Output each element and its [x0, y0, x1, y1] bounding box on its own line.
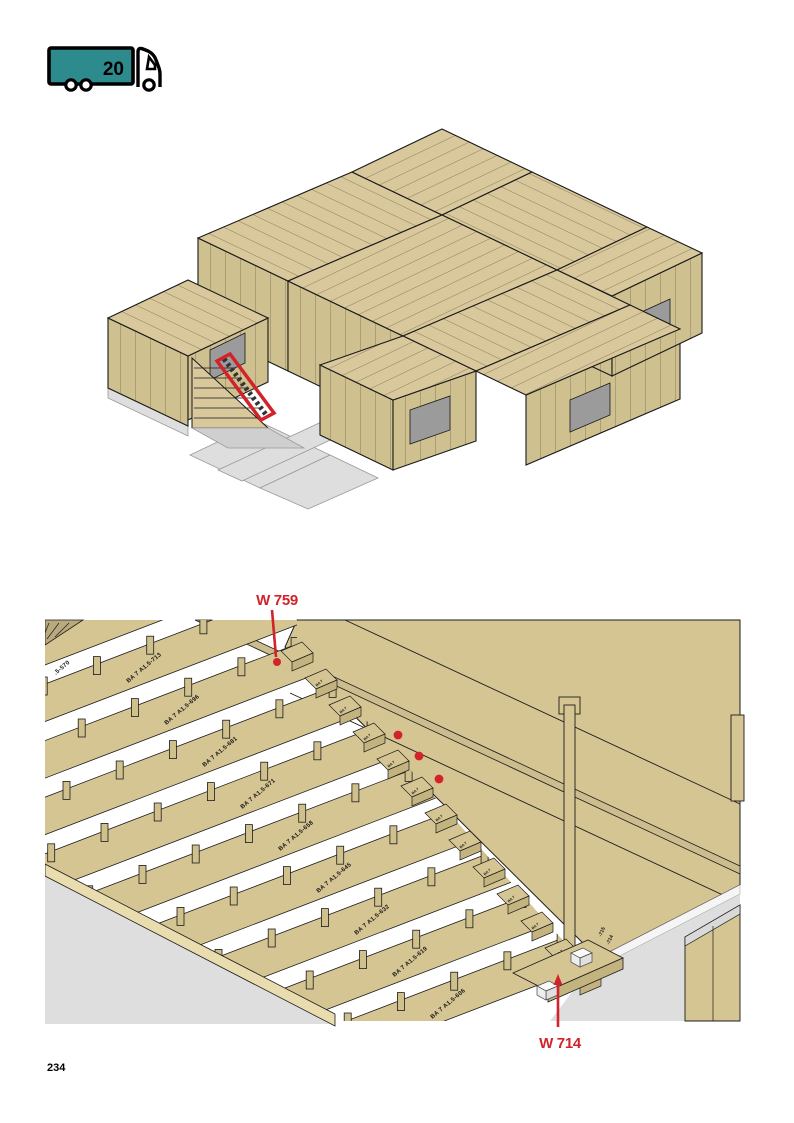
callout-label: W 714 [539, 1035, 582, 1052]
leader-dot [273, 658, 281, 666]
joist-rib [375, 888, 382, 906]
joist-rib [306, 585, 313, 593]
joist-rib [344, 1013, 351, 1031]
joist-rib [177, 907, 184, 925]
manual-page: 20 [0, 0, 794, 1123]
joist-rib [321, 909, 328, 927]
joist-rib [291, 1033, 298, 1051]
joist-rib [398, 597, 405, 615]
joist-rib [359, 951, 366, 969]
joist-rib [245, 825, 252, 843]
joist-rib [131, 699, 138, 717]
truck-wheel-icon [81, 80, 91, 90]
joist-rib [63, 781, 70, 799]
joist-rib [200, 616, 207, 634]
joist-rib [230, 887, 237, 905]
joist-rib [428, 868, 435, 886]
joist-rib [101, 823, 108, 841]
joist-rib [261, 762, 268, 780]
page-number: 234 [47, 1062, 65, 1074]
joist-rib [413, 930, 420, 948]
joist-rib [299, 804, 306, 822]
red-dot [435, 775, 444, 784]
joist-rib [192, 845, 199, 863]
truck-wheel-icon [66, 80, 76, 90]
joist-rib [207, 783, 214, 801]
joist-rib [162, 585, 169, 592]
joist-rib [314, 742, 321, 760]
truck-badge: 20 [46, 44, 164, 94]
wall-pilaster [731, 715, 744, 801]
panel-label: .5-570 [53, 660, 72, 677]
joist-rib [276, 700, 283, 718]
joist-rib [337, 846, 344, 864]
joist-rib [451, 972, 458, 990]
joist-rib [451, 585, 458, 594]
joist-rib [154, 803, 161, 821]
joist-rib [147, 1032, 154, 1050]
joist-rib [169, 741, 176, 759]
red-dot [415, 752, 424, 761]
joist-rib [185, 678, 192, 696]
red-dot [394, 731, 403, 740]
joist-rib [390, 826, 397, 844]
joist-rib [93, 657, 100, 675]
joist-rib [268, 929, 275, 947]
joist-rib [48, 844, 55, 862]
joist-rib [283, 867, 290, 885]
building-massing [108, 129, 702, 509]
joist-rib [116, 761, 123, 779]
tribune-detail-illustration: .5-570BA 7 A1.5-713BA 7 A1.5-696BA 7 A1.… [45, 585, 745, 1055]
truck-wheel-icon [144, 80, 154, 90]
joist-rib [238, 1054, 245, 1055]
building-overview-illustration [90, 110, 710, 510]
joist-rib [78, 719, 85, 737]
joist-rib [352, 784, 359, 802]
joist-rib [109, 594, 116, 612]
joist-rib [238, 658, 245, 676]
joist-rib [397, 993, 404, 1011]
joist-rib [45, 677, 47, 695]
joist-rib [139, 865, 146, 883]
joist-rib [466, 910, 473, 928]
callout-label: W 759 [256, 592, 298, 609]
joist-rib [306, 971, 313, 989]
joist-rib [504, 952, 511, 970]
joist-rib [147, 636, 154, 654]
joist-rib [223, 720, 230, 738]
truck-number: 20 [103, 59, 124, 80]
